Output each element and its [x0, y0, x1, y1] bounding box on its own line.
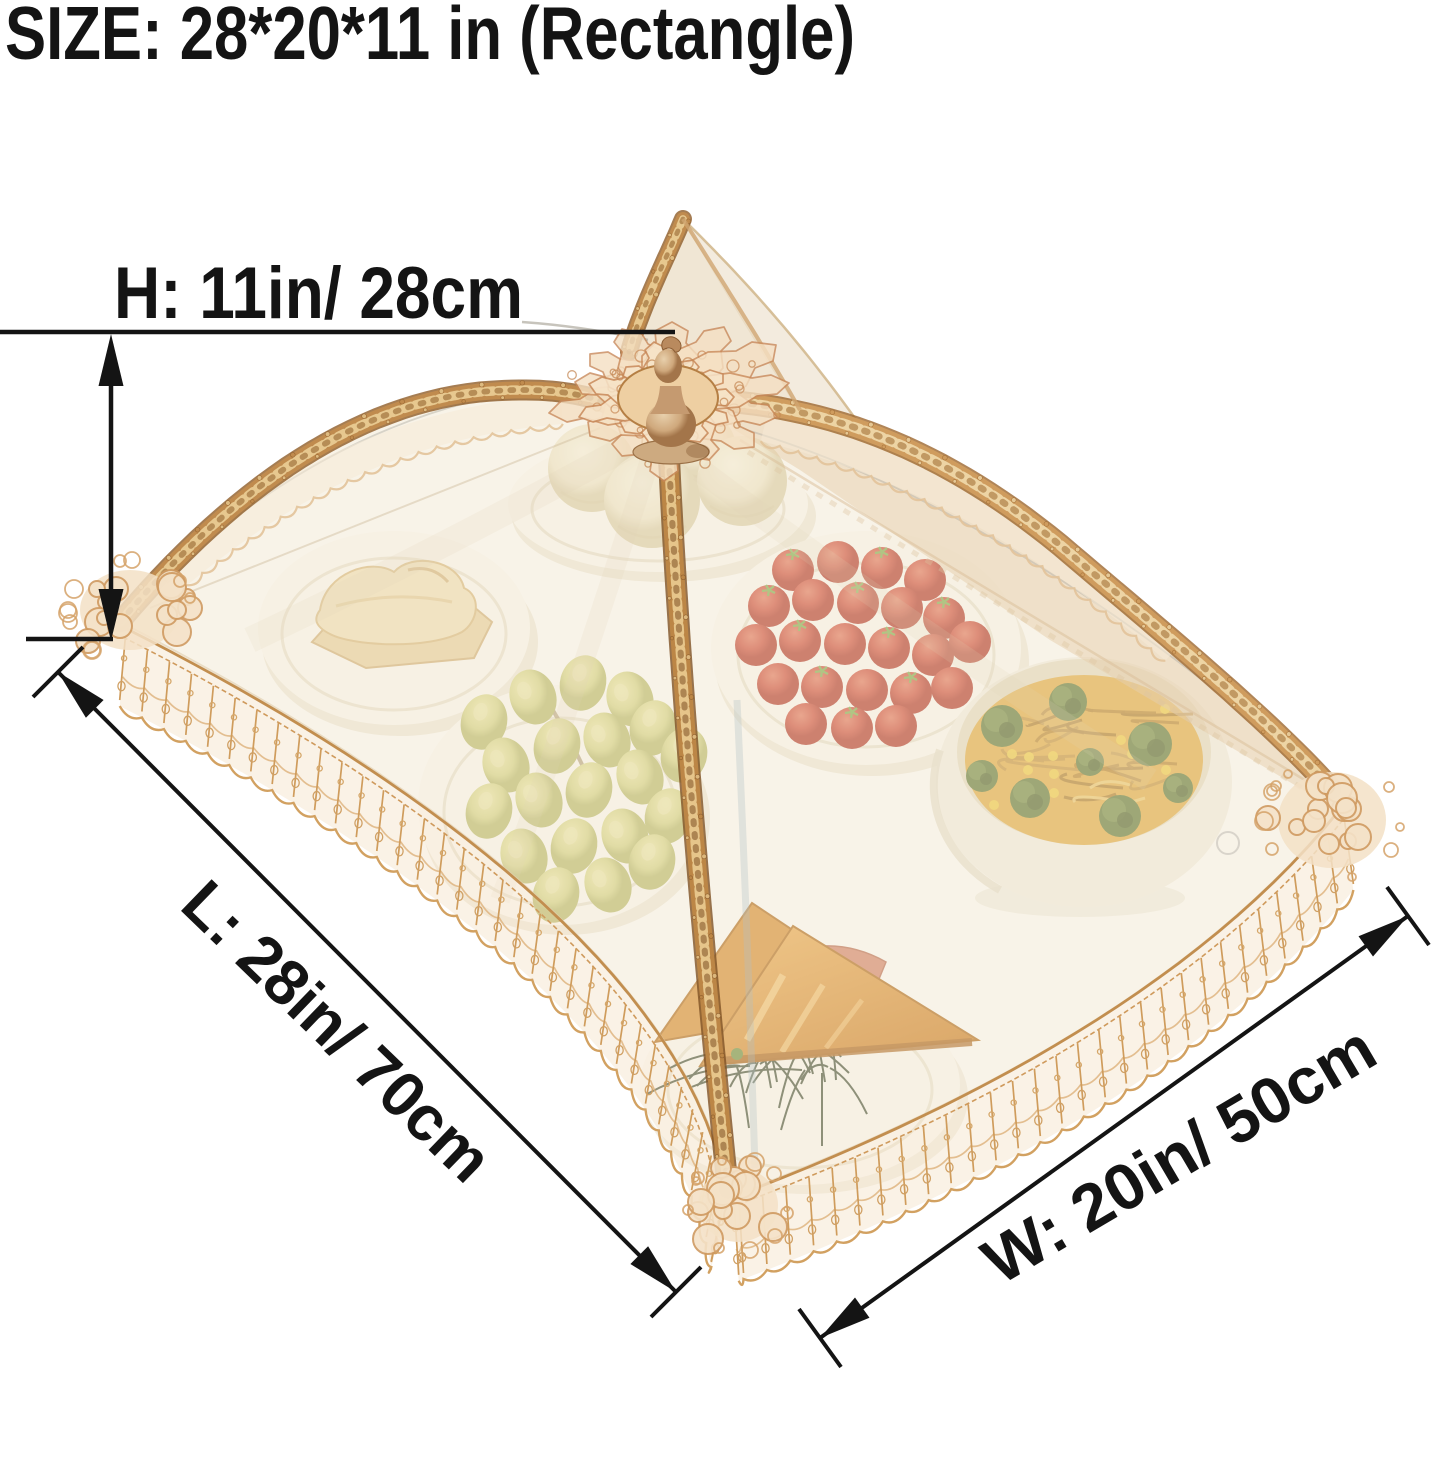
- svg-text:H: 11in/ 28cm: H: 11in/ 28cm: [114, 253, 523, 334]
- svg-text:SIZE: 28*20*11 in (Rectangle): SIZE: 28*20*11 in (Rectangle): [5, 0, 855, 75]
